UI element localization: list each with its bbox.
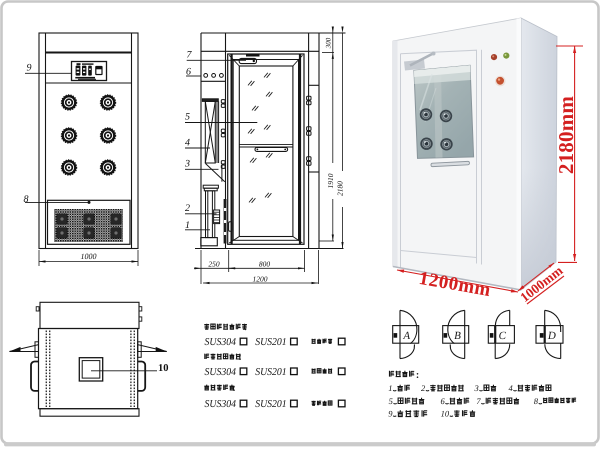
- svg-text:C: C: [499, 330, 507, 342]
- svg-text:8: 8: [534, 396, 539, 406]
- svg-text:1: 1: [388, 383, 392, 393]
- svg-text:800: 800: [259, 259, 271, 268]
- svg-text:4: 4: [185, 138, 190, 149]
- svg-text:1910: 1910: [326, 173, 335, 188]
- svg-text:A: A: [402, 330, 410, 342]
- svg-text:3: 3: [184, 159, 190, 170]
- svg-text:D: D: [547, 330, 556, 342]
- svg-text:2: 2: [185, 203, 190, 214]
- svg-text:9: 9: [27, 63, 32, 74]
- svg-text:1200: 1200: [253, 274, 268, 283]
- svg-text:300: 300: [325, 37, 333, 49]
- svg-text:SUS201: SUS201: [255, 367, 287, 378]
- svg-text:250: 250: [208, 259, 220, 268]
- svg-text:SUS304: SUS304: [205, 399, 237, 410]
- svg-text:1000: 1000: [81, 252, 97, 261]
- svg-text:5: 5: [185, 112, 190, 123]
- svg-text:3: 3: [474, 383, 479, 393]
- svg-text:10: 10: [441, 409, 450, 419]
- svg-text:5: 5: [389, 396, 393, 406]
- svg-text:8: 8: [24, 194, 29, 205]
- svg-text:SUS201: SUS201: [255, 399, 287, 410]
- svg-text:SUS304: SUS304: [205, 367, 237, 378]
- svg-text:B: B: [454, 330, 461, 342]
- svg-text:SUS201: SUS201: [255, 337, 287, 348]
- svg-text:2180: 2180: [336, 181, 345, 196]
- svg-text:10: 10: [158, 363, 169, 374]
- svg-text:9: 9: [388, 409, 393, 419]
- svg-text:7: 7: [476, 396, 481, 406]
- svg-text:SUS304: SUS304: [205, 337, 237, 348]
- svg-text:2180mm: 2180mm: [554, 96, 578, 174]
